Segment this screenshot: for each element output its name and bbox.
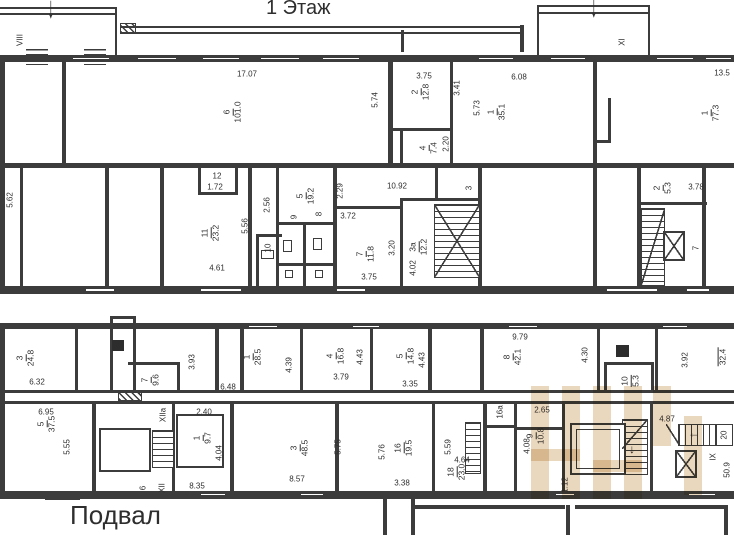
wall xyxy=(370,329,373,390)
wall xyxy=(604,362,654,365)
wall xyxy=(483,404,487,491)
watermark-bar xyxy=(562,386,580,499)
room-number-label: 7 xyxy=(692,246,701,250)
duct xyxy=(616,345,629,357)
dimension-label: 2.40 xyxy=(196,408,212,417)
wall xyxy=(20,166,23,288)
awning-hatch xyxy=(120,23,136,34)
wall xyxy=(388,60,393,165)
room-label: 47.4 xyxy=(419,142,440,154)
room-label: 711.8 xyxy=(356,246,377,262)
dimension-label: 6.08 xyxy=(511,73,527,82)
room-label: 212.8 xyxy=(411,84,432,101)
dimension-label: 3.41 xyxy=(453,80,462,96)
window xyxy=(248,324,278,329)
wall xyxy=(256,234,259,288)
window xyxy=(656,56,694,62)
stairs xyxy=(465,422,481,474)
window xyxy=(508,324,538,329)
dimension-label: 17.07 xyxy=(237,70,257,79)
dimension-label: 10.92 xyxy=(387,182,407,191)
toilet-fixture xyxy=(283,240,292,252)
dimension-label: 5.75 xyxy=(334,439,343,455)
wall-hatch xyxy=(45,492,80,500)
window xyxy=(200,492,226,498)
window xyxy=(85,287,115,294)
watermark-bar xyxy=(684,416,702,495)
wall xyxy=(415,505,565,509)
entrance-arrow-icon: ↓ xyxy=(590,0,598,23)
wall xyxy=(432,404,435,491)
watermark-bar xyxy=(624,386,642,499)
wall xyxy=(435,166,438,201)
room-label: 1619.5 xyxy=(394,440,415,457)
dimension-label: 3.72 xyxy=(340,212,356,221)
watermark-bar xyxy=(593,386,611,499)
wall xyxy=(724,505,728,535)
window xyxy=(202,56,240,62)
room-label-partial: 32.4 xyxy=(718,348,729,367)
dimension-label: 6.48 xyxy=(220,383,236,392)
room-number-label: 9 xyxy=(290,215,299,219)
stair-stringer xyxy=(434,204,480,278)
dimension-label: 4.04 xyxy=(215,445,224,461)
wall xyxy=(62,60,66,165)
dimension-label: 5.59 xyxy=(444,439,453,455)
window xyxy=(352,324,380,329)
floor1-title: 1 Этаж xyxy=(266,0,331,20)
wall xyxy=(514,404,517,491)
window xyxy=(200,287,242,294)
wall xyxy=(400,198,403,288)
wall xyxy=(411,499,415,535)
wall xyxy=(177,362,180,390)
dimension-label: 4.64 xyxy=(454,456,470,465)
room-label: 514.8 xyxy=(396,348,417,365)
wall xyxy=(276,166,279,288)
awning-line xyxy=(120,32,523,34)
room-label: 128.5 xyxy=(243,349,264,366)
room-number-label: 20 xyxy=(720,431,729,440)
dimension-label: 5.62 xyxy=(6,192,15,208)
dimension-label: 3.93 xyxy=(188,354,197,370)
window xyxy=(662,324,688,329)
window xyxy=(606,287,658,294)
wall xyxy=(400,198,480,201)
dimension-label: 9.79 xyxy=(512,333,528,342)
toilet-fixture xyxy=(313,238,322,250)
room-label: 19.7 xyxy=(193,432,214,444)
wall xyxy=(333,206,403,209)
dimension-label: 3.75 xyxy=(361,273,377,282)
entrance-label: VIII xyxy=(16,34,25,46)
awning-post xyxy=(520,25,524,52)
sink-fixture xyxy=(315,270,323,278)
room-number-label: 3 xyxy=(465,186,474,190)
window xyxy=(260,56,300,62)
watermark-bar xyxy=(653,386,671,446)
floor-plan: 1 Этаж Подвал ↓ ↓ ↓ ← VIII XI 6101.0 212… xyxy=(0,0,734,535)
shaft-wall xyxy=(110,316,136,319)
dimension-label: 6.95 xyxy=(38,408,54,417)
wall xyxy=(105,166,109,288)
room-number-label: 12 xyxy=(213,172,222,181)
dimension-label: 2.56 xyxy=(263,197,272,213)
wall xyxy=(480,329,484,390)
dimension-label: 3.35 xyxy=(402,380,418,389)
window xyxy=(686,287,710,294)
dimension-label: 5.74 xyxy=(371,92,380,108)
dimension-label: 4.43 xyxy=(356,349,365,365)
room-label: 842.1 xyxy=(503,349,524,366)
dimension-label: 2.29 xyxy=(336,183,345,199)
wall xyxy=(483,425,517,428)
wall xyxy=(597,329,600,390)
sink-fixture xyxy=(285,270,293,278)
wall xyxy=(655,329,658,390)
room-label: 519.2 xyxy=(296,188,317,205)
dimension-label: 3.20 xyxy=(388,240,397,256)
wall xyxy=(276,263,336,266)
dimension-label: 50.9 xyxy=(723,462,732,478)
window xyxy=(478,56,514,62)
elevator xyxy=(663,231,685,261)
dimension-label: 6.32 xyxy=(29,378,45,387)
dimension-label: 13.5 xyxy=(714,69,730,78)
wall xyxy=(160,166,164,288)
window xyxy=(137,56,177,62)
room-label: 324.8 xyxy=(16,350,37,367)
dimension-label: 3.78 xyxy=(688,183,704,192)
wall xyxy=(388,128,453,131)
room-label: 537.5 xyxy=(37,416,58,433)
dimension-label: 2.20 xyxy=(442,136,451,152)
dimension-label: 5.56 xyxy=(241,218,250,234)
wall xyxy=(593,166,597,288)
porch-edge xyxy=(0,7,117,9)
dimension-label: 3.79 xyxy=(333,373,349,382)
dimension-label: 8.35 xyxy=(189,482,205,491)
porch-edge xyxy=(0,13,117,15)
room-label: 177.3 xyxy=(701,105,722,122)
wall-hatch xyxy=(118,390,142,401)
stairwell-label: XIIa xyxy=(159,408,168,422)
wall xyxy=(235,166,238,194)
entry-steps xyxy=(84,49,106,65)
dimension-label: 5.76 xyxy=(378,444,387,460)
basement-title: Подвал xyxy=(70,500,161,531)
wall xyxy=(303,222,306,286)
dimension-label: 1.72 xyxy=(207,183,223,192)
wall xyxy=(300,329,303,390)
wall xyxy=(0,323,5,499)
stairs xyxy=(152,430,174,468)
wall xyxy=(0,55,734,62)
dimension-label: 5.55 xyxy=(63,439,72,455)
dimension-label: 3.75 xyxy=(416,72,432,81)
room-label: 348.5 xyxy=(290,440,311,457)
stairwell-label: XII xyxy=(158,483,167,493)
wall xyxy=(215,329,219,390)
room-label: 1123.2 xyxy=(201,225,222,242)
room-label: 25.3 xyxy=(653,182,674,194)
room-number-label: 8 xyxy=(315,212,324,216)
window xyxy=(705,56,732,62)
wall xyxy=(75,329,78,390)
window xyxy=(300,492,324,498)
room-number-label: 10 xyxy=(264,244,273,253)
entrance-arrow-icon: ↓ xyxy=(47,0,55,24)
wall xyxy=(593,60,597,166)
dimension-label: 3.38 xyxy=(394,479,410,488)
window xyxy=(550,56,586,62)
entry-steps xyxy=(26,49,48,65)
room-number-label: 16а xyxy=(496,405,505,418)
wall xyxy=(92,404,96,491)
dimension-label: 4.43 xyxy=(418,352,427,368)
dimension-label: 5.73 xyxy=(473,100,482,116)
wall xyxy=(637,202,707,205)
wall xyxy=(276,222,336,225)
dimension-label: 4.02 xyxy=(409,260,418,276)
room-area: 101.0 xyxy=(234,101,244,122)
dimension-label: 8.57 xyxy=(289,475,305,484)
wall xyxy=(428,329,432,390)
room-number-label: 6 xyxy=(139,486,148,490)
stairwell-label: IX xyxy=(709,453,718,461)
room-label: 6101.0 xyxy=(223,101,244,122)
wall xyxy=(230,404,234,491)
inner-room xyxy=(99,428,151,472)
room-label: 79.6 xyxy=(141,374,162,386)
dimension-label: 4.39 xyxy=(285,357,294,373)
wall xyxy=(566,505,570,535)
window xyxy=(322,56,360,62)
room-label: 416.8 xyxy=(326,348,347,365)
awning-line xyxy=(120,26,523,28)
wall xyxy=(400,131,403,165)
room-label: 3а12.2 xyxy=(409,239,430,256)
stair-stringer xyxy=(641,208,665,286)
dimension-label: 3.92 xyxy=(681,352,690,368)
wall xyxy=(383,499,387,535)
entrance-label: XI xyxy=(618,38,627,46)
dimension-label: 4.30 xyxy=(581,347,590,363)
duct xyxy=(112,340,124,351)
wall xyxy=(608,98,611,143)
watermark-bar xyxy=(531,386,549,499)
wall xyxy=(0,55,5,294)
wall xyxy=(198,166,201,194)
room-label: 135.1 xyxy=(487,104,508,121)
room-label: 1823.0 xyxy=(447,464,468,481)
wall xyxy=(0,163,734,168)
dimension-label: 4.61 xyxy=(209,264,225,273)
wall xyxy=(575,505,728,509)
wall xyxy=(198,192,238,195)
window xyxy=(336,287,366,294)
